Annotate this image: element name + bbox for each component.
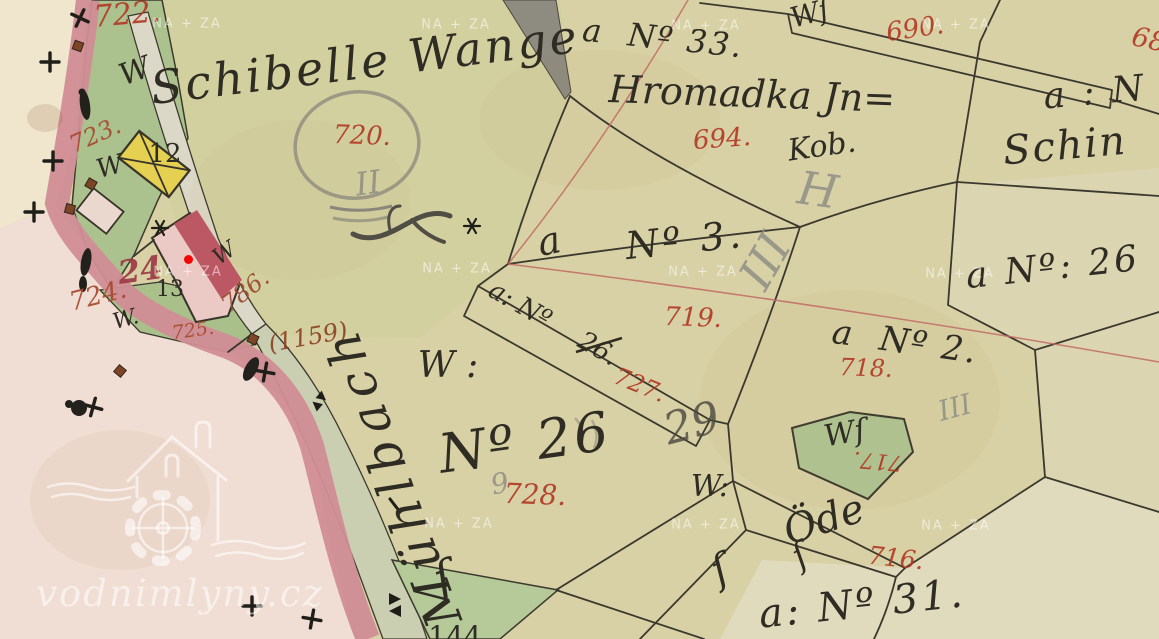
map-canvas (0, 0, 1159, 639)
map-marker-dot[interactable] (184, 255, 193, 264)
site-logo-text: vodnimlyny.cz (36, 572, 324, 615)
cadastral-map-viewport: 722.723.720.694.690.68719.727.718.717.72… (0, 0, 1159, 639)
